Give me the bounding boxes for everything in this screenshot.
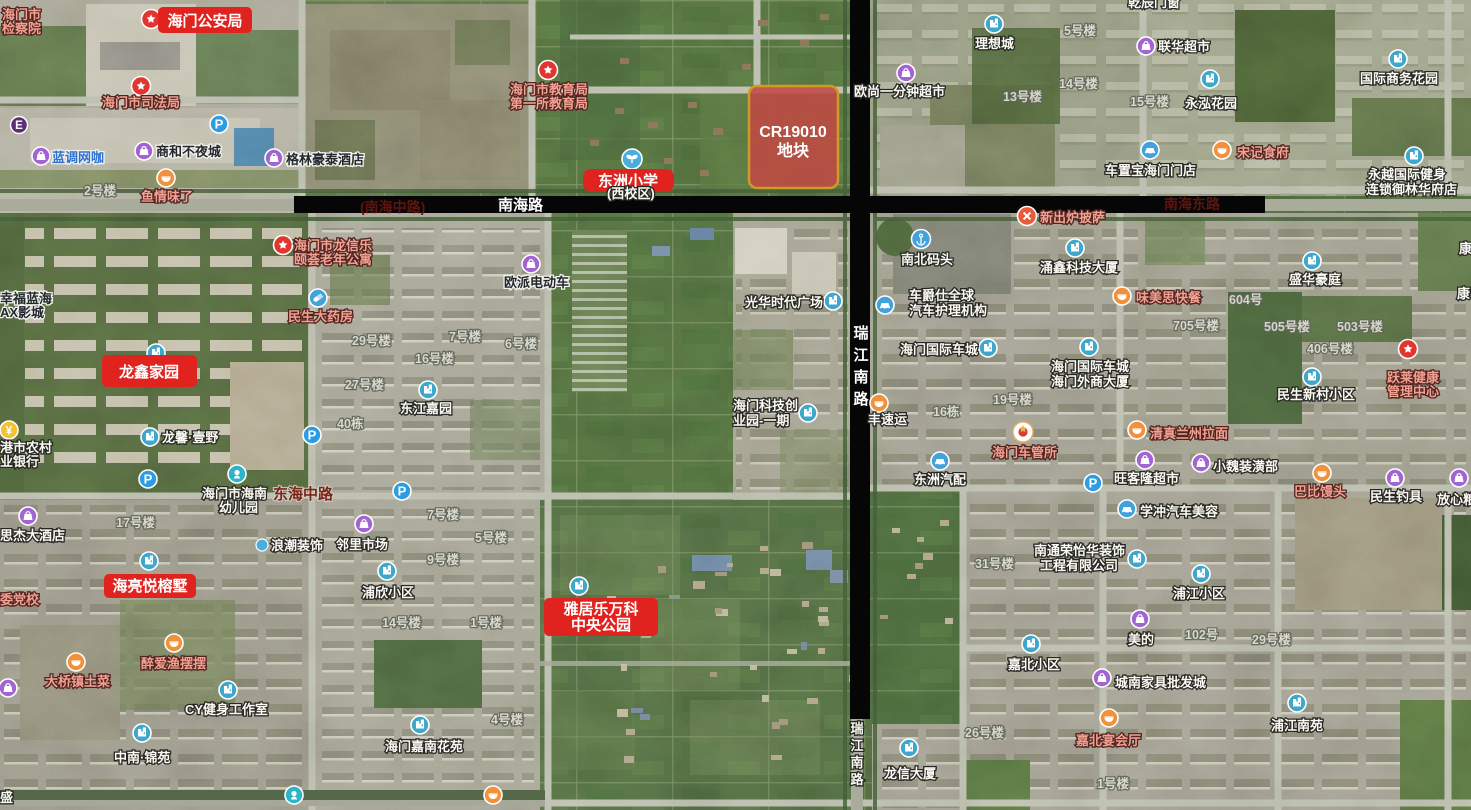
svg-text:委党校: 委党校 — [0, 592, 40, 607]
svg-text:102号: 102号 — [1185, 627, 1218, 642]
svg-text:港市农村: 港市农村 — [0, 440, 52, 455]
svg-text:东江嘉园: 东江嘉园 — [400, 401, 452, 416]
svg-text:5号楼: 5号楼 — [475, 530, 507, 545]
svg-text:连锁御林华府店: 连锁御林华府店 — [1366, 182, 1457, 197]
svg-text:31号楼: 31号楼 — [975, 556, 1014, 571]
svg-text:光华时代广场: 光华时代广场 — [744, 295, 823, 310]
svg-text:1号楼: 1号楼 — [1097, 776, 1129, 791]
svg-text:检察院: 检察院 — [2, 21, 41, 36]
svg-text:7号楼: 7号楼 — [449, 329, 481, 344]
svg-text:民生新村小区: 民生新村小区 — [1277, 387, 1355, 402]
svg-text:中央公园: 中央公园 — [571, 616, 631, 634]
svg-text:26号楼: 26号楼 — [965, 725, 1004, 740]
svg-text:406号楼: 406号楼 — [1307, 341, 1353, 356]
svg-text:放心粮: 放心粮 — [1436, 492, 1471, 507]
svg-text:联华超市: 联华超市 — [1158, 39, 1210, 54]
svg-text:15号楼: 15号楼 — [1130, 94, 1169, 109]
svg-text:康: 康 — [1457, 286, 1471, 301]
svg-text:南海路: 南海路 — [498, 196, 544, 214]
svg-text:海门国际车城: 海门国际车城 — [900, 342, 978, 357]
svg-text:4号楼: 4号楼 — [491, 712, 523, 727]
svg-text:幼儿园: 幼儿园 — [219, 500, 258, 515]
svg-text:14号楼: 14号楼 — [1059, 76, 1098, 91]
svg-text:嘉北小区: 嘉北小区 — [1007, 657, 1060, 672]
svg-text:海门外商大厦: 海门外商大厦 — [1051, 374, 1130, 389]
svg-text:醉爱渔摆摆: 醉爱渔摆摆 — [141, 656, 206, 671]
svg-text:海门车管所: 海门车管所 — [992, 445, 1057, 460]
svg-text:车爵仕全球: 车爵仕全球 — [909, 288, 975, 303]
svg-text:思杰大酒店: 思杰大酒店 — [0, 528, 65, 543]
svg-text:学冲汽车美容: 学冲汽车美容 — [1140, 504, 1218, 519]
svg-text:19号楼: 19号楼 — [993, 392, 1032, 407]
svg-text:17号楼: 17号楼 — [116, 515, 155, 530]
svg-text:巴比馒头: 巴比馒头 — [1294, 484, 1346, 499]
svg-text:蓝调网咖: 蓝调网咖 — [52, 150, 104, 165]
svg-text:海门公安局: 海门公安局 — [167, 12, 242, 30]
svg-text:格林豪泰酒店: 格林豪泰酒店 — [286, 152, 364, 167]
svg-text:14号楼: 14号楼 — [382, 615, 421, 630]
svg-text:新出炉披萨: 新出炉披萨 — [1040, 210, 1105, 225]
svg-text:浦江南苑: 浦江南苑 — [1271, 718, 1323, 733]
svg-text:民生钓具: 民生钓具 — [1370, 489, 1422, 504]
svg-text:幸福蓝海: 幸福蓝海 — [0, 291, 52, 306]
svg-text:705号楼: 705号楼 — [1173, 318, 1219, 333]
svg-text:南海东路: 南海东路 — [1164, 196, 1221, 212]
svg-text:康: 康 — [1459, 241, 1471, 256]
svg-text:嘉北宴会厅: 嘉北宴会厅 — [1075, 733, 1141, 748]
svg-text:管理中心: 管理中心 — [1387, 384, 1439, 399]
svg-text:505号楼: 505号楼 — [1264, 319, 1310, 334]
svg-text:小魏装潢部: 小魏装潢部 — [1213, 459, 1278, 474]
svg-text:颐荟老年公寓: 颐荟老年公寓 — [294, 252, 372, 267]
svg-text:龙信大厦: 龙信大厦 — [884, 766, 937, 781]
svg-text:城南家具批发城: 城南家具批发城 — [1115, 675, 1206, 690]
svg-text:(西校区): (西校区) — [607, 186, 655, 201]
svg-text:海门国际车城: 海门国际车城 — [1051, 359, 1129, 374]
svg-text:9号楼: 9号楼 — [427, 552, 459, 567]
svg-text:汽车护理机构: 汽车护理机构 — [909, 303, 987, 318]
svg-text:16栋: 16栋 — [933, 404, 960, 419]
svg-text:海门市海南: 海门市海南 — [202, 486, 267, 501]
svg-text:29号楼: 29号楼 — [1252, 632, 1291, 647]
svg-text:海门市教育局: 海门市教育局 — [510, 82, 588, 97]
svg-text:浪潮装饰: 浪潮装饰 — [271, 538, 323, 553]
svg-text:盛华豪庭: 盛华豪庭 — [1289, 272, 1342, 287]
svg-text:东海中路: 东海中路 — [273, 485, 334, 503]
svg-text:大桥镇土菜: 大桥镇土菜 — [45, 674, 110, 689]
svg-text:海亮悦榕墅: 海亮悦榕墅 — [112, 577, 187, 595]
svg-text:跃莱健康: 跃莱健康 — [1387, 370, 1440, 385]
svg-text:工程有限公司: 工程有限公司 — [1040, 558, 1118, 573]
svg-text:理想城: 理想城 — [975, 36, 1014, 51]
svg-text:清真兰州拉面: 清真兰州拉面 — [1150, 426, 1228, 441]
svg-text:南北码头: 南北码头 — [901, 252, 953, 267]
svg-text:CY健身工作室: CY健身工作室 — [185, 702, 268, 717]
svg-text:业园-一期: 业园-一期 — [733, 413, 789, 428]
svg-text:业银行: 业银行 — [0, 454, 39, 469]
svg-text:5号楼: 5号楼 — [1064, 23, 1096, 38]
svg-text:盛: 盛 — [0, 790, 13, 805]
svg-text:海门市: 海门市 — [2, 7, 41, 22]
svg-text:AX影城: AX影城 — [0, 305, 44, 320]
svg-text:1号楼: 1号楼 — [470, 615, 502, 630]
svg-text:乾辰门窗: 乾辰门窗 — [1128, 0, 1180, 10]
svg-text:鱼情味了: 鱼情味了 — [141, 189, 193, 204]
svg-text:13号楼: 13号楼 — [1003, 89, 1042, 104]
svg-text:旺客隆超市: 旺客隆超市 — [1114, 471, 1179, 486]
svg-text:浦江小区: 浦江小区 — [1173, 586, 1225, 601]
svg-text:40栋: 40栋 — [337, 416, 364, 431]
svg-text:龙馨·壹野: 龙馨·壹野 — [162, 430, 218, 445]
svg-text:南通荣怡华装饰: 南通荣怡华装饰 — [1034, 543, 1125, 558]
svg-text:7号楼: 7号楼 — [427, 507, 459, 522]
svg-text:海门市龙信乐: 海门市龙信乐 — [294, 238, 372, 253]
svg-text:雅居乐万科: 雅居乐万科 — [562, 600, 638, 618]
svg-text:604号: 604号 — [1229, 292, 1262, 307]
svg-text:503号楼: 503号楼 — [1337, 319, 1383, 334]
svg-text:丰速运: 丰速运 — [868, 412, 907, 427]
svg-text:海门嘉南花苑: 海门嘉南花苑 — [385, 739, 463, 754]
svg-text:永泓花园: 永泓花园 — [1184, 96, 1237, 111]
svg-text:味美思快餐: 味美思快餐 — [1136, 290, 1202, 305]
svg-text:6号楼: 6号楼 — [505, 336, 537, 351]
svg-text:浦欣小区: 浦欣小区 — [362, 585, 414, 600]
svg-text:CR19010: CR19010 — [759, 124, 827, 141]
svg-text:2号楼: 2号楼 — [84, 183, 116, 198]
svg-text:29号楼: 29号楼 — [352, 333, 391, 348]
svg-text:民生大药房: 民生大药房 — [288, 309, 353, 324]
svg-text:车置宝海门门店: 车置宝海门门店 — [1105, 163, 1196, 178]
svg-text:地块: 地块 — [777, 141, 810, 160]
svg-text:海门市司法局: 海门市司法局 — [102, 95, 180, 110]
svg-text:27号楼: 27号楼 — [345, 377, 384, 392]
svg-text:宋记食府: 宋记食府 — [1236, 145, 1289, 160]
svg-text:第一所教育局: 第一所教育局 — [510, 96, 588, 111]
svg-text:(南海中路): (南海中路) — [360, 199, 425, 215]
svg-text:欧尚一分钟超市: 欧尚一分钟超市 — [854, 84, 945, 99]
svg-text:东洲汽配: 东洲汽配 — [914, 472, 966, 487]
svg-text:邻里市场: 邻里市场 — [335, 537, 388, 552]
svg-text:欧派电动车: 欧派电动车 — [504, 275, 569, 290]
svg-text:16号楼: 16号楼 — [415, 351, 454, 366]
svg-text:永越国际健身: 永越国际健身 — [1367, 167, 1446, 182]
svg-text:商和不夜城: 商和不夜城 — [156, 144, 221, 159]
svg-text:国际商务花园: 国际商务花园 — [1360, 71, 1438, 86]
svg-text:中南·锦苑: 中南·锦苑 — [114, 750, 170, 765]
svg-text:美的: 美的 — [1128, 632, 1154, 647]
svg-text:海门科技创: 海门科技创 — [733, 398, 798, 413]
svg-text:涌鑫科技大厦: 涌鑫科技大厦 — [1040, 260, 1119, 275]
svg-text:龙鑫家园: 龙鑫家园 — [118, 363, 179, 381]
